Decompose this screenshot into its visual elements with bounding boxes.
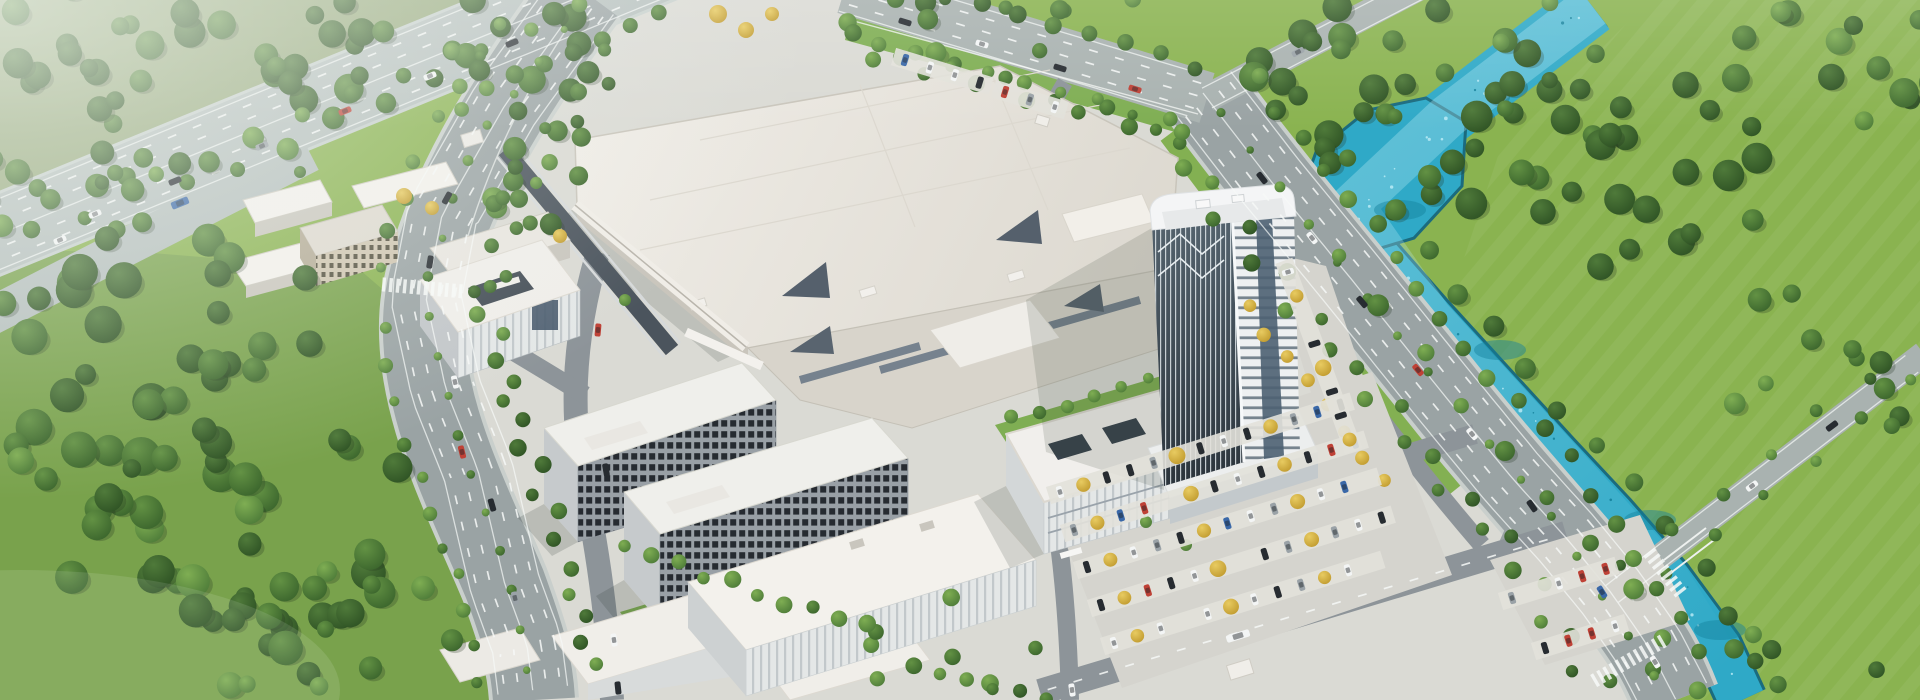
tree (697, 572, 710, 585)
tree (441, 629, 463, 651)
tree (1028, 641, 1042, 655)
tree (1724, 393, 1746, 415)
tree (1339, 150, 1356, 167)
tree (1583, 488, 1598, 503)
water-sparkle (1384, 175, 1386, 177)
tree (1680, 223, 1700, 243)
tree (82, 510, 112, 540)
tree (1485, 439, 1495, 449)
water-sparkle (1390, 185, 1393, 188)
tree (1724, 639, 1744, 659)
tree (1745, 626, 1762, 643)
tree (1649, 671, 1659, 681)
water-sparkle (1731, 673, 1733, 675)
tree (423, 507, 437, 521)
render-canvas (0, 0, 1920, 700)
tree (1301, 373, 1315, 387)
tree (354, 539, 385, 570)
tree (1210, 560, 1227, 577)
tree (1408, 281, 1424, 297)
tree (317, 621, 334, 638)
tree (1453, 398, 1468, 413)
tree (1033, 406, 1046, 419)
tree (238, 532, 261, 555)
tree (302, 576, 327, 601)
tree (1183, 486, 1199, 502)
tree (724, 571, 741, 588)
tree (1277, 457, 1292, 472)
tree (546, 532, 561, 547)
tree (1548, 401, 1566, 419)
tree (1290, 494, 1305, 509)
car-glass (1069, 687, 1074, 693)
tree (1343, 433, 1357, 447)
tree (1205, 175, 1219, 189)
tree (1870, 351, 1893, 374)
tree (831, 610, 847, 626)
tree (1304, 532, 1319, 547)
tree (1076, 478, 1090, 492)
tree (751, 589, 764, 602)
tree (1315, 359, 1332, 376)
water-sparkle (1368, 205, 1371, 208)
tree (643, 547, 659, 563)
tree (944, 649, 961, 666)
tree (942, 589, 960, 607)
tree (776, 596, 793, 613)
tree (1393, 331, 1402, 340)
water-sparkle (1690, 613, 1693, 616)
tree (1691, 644, 1707, 660)
tree (1855, 411, 1868, 424)
water-sparkle (1553, 438, 1555, 440)
tree (1619, 239, 1640, 260)
tree (1223, 599, 1239, 615)
tree (1539, 490, 1554, 505)
tree (1748, 288, 1772, 312)
lane-dash (516, 673, 517, 682)
tree (1175, 159, 1192, 176)
tree (1582, 535, 1599, 552)
tree (1395, 399, 1409, 413)
tree (1242, 220, 1257, 235)
tree (564, 561, 580, 577)
tree (1665, 523, 1679, 537)
water-sparkle (1533, 412, 1535, 414)
tree (1608, 516, 1625, 533)
tree (1483, 316, 1504, 337)
tree (1263, 419, 1277, 433)
tree (590, 657, 604, 671)
tree (1103, 553, 1117, 567)
tree (1623, 579, 1644, 600)
tree (573, 635, 588, 650)
tree (1719, 607, 1738, 626)
tree (1504, 529, 1518, 543)
tree (1566, 665, 1578, 677)
tree (1530, 199, 1556, 225)
tree (1905, 374, 1916, 385)
water-sparkle (1426, 136, 1428, 138)
tree (1385, 199, 1406, 220)
water-sparkle (1518, 409, 1522, 413)
tree (1090, 516, 1104, 530)
tree (495, 546, 505, 556)
tree (579, 609, 593, 623)
tree (336, 599, 364, 627)
tree (454, 568, 465, 579)
tree (1689, 681, 1707, 699)
corner-haze (0, 0, 820, 500)
tree (1418, 165, 1441, 188)
tree (1417, 344, 1434, 361)
tree (1517, 476, 1525, 484)
tree (1440, 150, 1465, 175)
aerial-campus-rendering (0, 0, 1920, 700)
tree (1698, 559, 1716, 577)
tree (1633, 195, 1660, 222)
tree (1424, 367, 1433, 376)
tree (1447, 284, 1468, 305)
tree (1455, 188, 1487, 220)
tree (934, 668, 946, 680)
tree (437, 543, 447, 553)
water-sparkle (1441, 138, 1444, 141)
tree (1420, 241, 1439, 260)
tree (411, 576, 435, 600)
tree (1769, 676, 1786, 693)
tree (1511, 393, 1527, 409)
tree (1476, 522, 1489, 535)
water-sparkle (1428, 138, 1431, 141)
tree (1801, 329, 1822, 350)
tree (1747, 653, 1763, 669)
tree (1332, 249, 1346, 263)
tree (1425, 448, 1441, 464)
roof-structure (1196, 199, 1211, 208)
tree (270, 572, 299, 601)
tree (1868, 661, 1885, 678)
tree (1465, 139, 1484, 158)
tree (1318, 571, 1331, 584)
tree (471, 677, 482, 688)
water-sparkle (1394, 168, 1396, 170)
tree (1275, 181, 1286, 192)
tree (1673, 159, 1700, 186)
water-depth-patch (1694, 620, 1746, 640)
tree (1367, 294, 1389, 316)
tree (359, 656, 382, 679)
water-sparkle (1535, 420, 1537, 422)
lane-dash (503, 675, 504, 684)
tree (1357, 391, 1373, 407)
tree (1625, 550, 1642, 567)
water-sparkle (1609, 498, 1612, 501)
tree (1296, 130, 1312, 146)
tree (1709, 528, 1722, 541)
tree (1061, 400, 1074, 413)
water-sparkle (1502, 388, 1504, 390)
tree (671, 554, 686, 569)
tree (1884, 418, 1900, 434)
tree (1088, 389, 1101, 402)
tree (1339, 190, 1357, 208)
tree (1562, 182, 1582, 202)
tree (551, 503, 568, 520)
tree (1565, 448, 1579, 462)
tree (1758, 490, 1768, 500)
tree (1281, 350, 1294, 363)
tree (1625, 473, 1643, 491)
tree (1624, 631, 1633, 640)
tree (1004, 410, 1018, 424)
tree (1197, 524, 1211, 538)
tree (1168, 447, 1185, 464)
tree (1432, 311, 1448, 327)
tree (363, 576, 381, 594)
tree (1205, 212, 1220, 227)
tree (1131, 629, 1145, 643)
tree (1758, 376, 1774, 392)
tree (1244, 299, 1257, 312)
tree (1587, 253, 1614, 280)
tree (870, 671, 885, 686)
tree (1432, 484, 1445, 497)
tree (1515, 358, 1536, 379)
tree (1674, 611, 1688, 625)
tree (1843, 340, 1861, 358)
tree (806, 600, 819, 613)
tree (1783, 284, 1801, 302)
tree (1246, 146, 1254, 154)
tree (1315, 313, 1328, 326)
tree (986, 683, 998, 695)
tree (1495, 441, 1515, 461)
tree (456, 603, 471, 618)
water-sparkle (1368, 199, 1370, 201)
car-glass (611, 637, 616, 643)
tree (1257, 328, 1271, 342)
tree (1536, 419, 1554, 437)
tree (1243, 254, 1260, 271)
tree (1649, 581, 1664, 596)
tree (482, 509, 490, 517)
tree (516, 625, 525, 634)
tree (1465, 492, 1480, 507)
water-sparkle (1687, 586, 1689, 588)
tree (1589, 437, 1605, 453)
tree (1290, 289, 1303, 302)
tree (1118, 591, 1132, 605)
tree (858, 615, 876, 633)
tree (618, 540, 630, 552)
tree (1455, 341, 1471, 357)
tree (1713, 160, 1744, 191)
tree (1369, 215, 1387, 233)
tree (1304, 219, 1314, 229)
tree (1398, 435, 1412, 449)
lane-dash (558, 668, 559, 677)
tree (1534, 615, 1548, 629)
tree (1504, 562, 1522, 580)
tree (1810, 404, 1823, 417)
tree (1349, 360, 1364, 375)
tree (1355, 451, 1369, 465)
tree (959, 672, 974, 687)
tree (468, 640, 480, 652)
tree (1143, 373, 1154, 384)
tree (1390, 251, 1403, 264)
tree (1115, 381, 1126, 392)
tree (1717, 488, 1731, 502)
tree (563, 588, 576, 601)
tree (1766, 449, 1777, 460)
tree (1013, 684, 1027, 698)
water-sparkle (1457, 333, 1459, 335)
tree (1478, 370, 1495, 387)
lane-dash (544, 670, 545, 679)
tree (1742, 209, 1764, 231)
tree (1864, 373, 1876, 385)
tree (1509, 160, 1535, 186)
tree (1572, 552, 1581, 561)
tree (1874, 378, 1896, 400)
water-depth-patch (1474, 340, 1526, 360)
tree (905, 657, 922, 674)
tree (1547, 512, 1556, 521)
tree (1604, 184, 1635, 215)
tree (523, 666, 531, 674)
tree (1742, 143, 1773, 174)
tree (1317, 164, 1330, 177)
tree (1810, 456, 1821, 467)
tree (1762, 640, 1781, 659)
